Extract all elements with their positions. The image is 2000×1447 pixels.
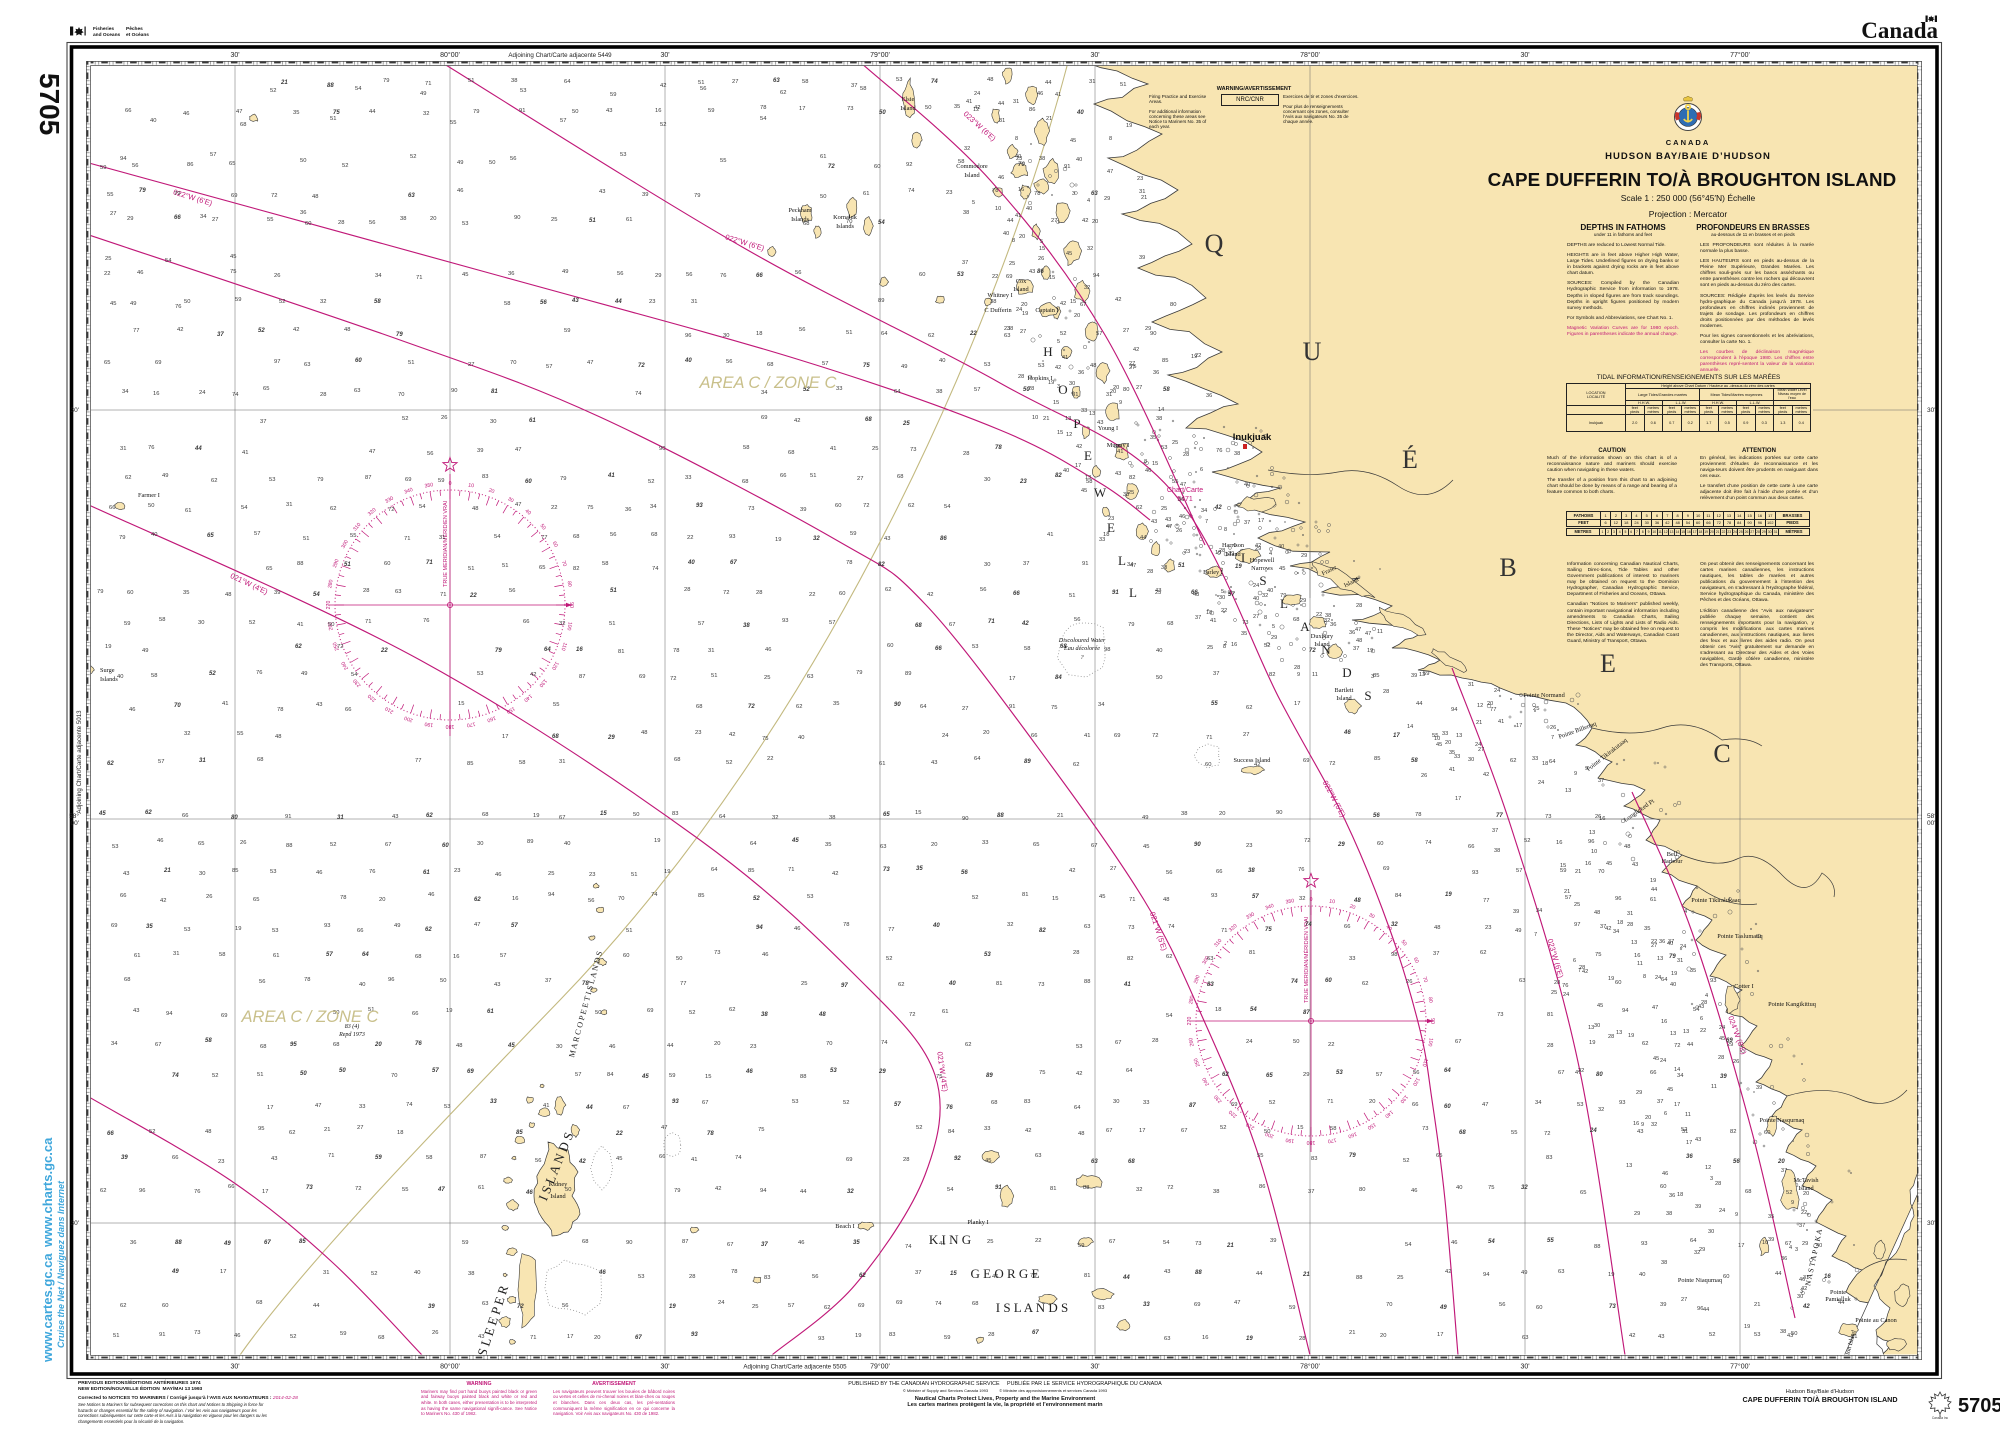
svg-text:73: 73 — [1545, 814, 1551, 820]
svg-text:56: 56 — [588, 898, 594, 904]
svg-text:39: 39 — [1720, 1074, 1727, 1080]
svg-text:15: 15 — [1560, 863, 1566, 869]
svg-text:42: 42 — [1582, 969, 1588, 975]
svg-text:26: 26 — [1733, 1059, 1739, 1065]
svg-text:40: 40 — [932, 923, 940, 929]
svg-text:28: 28 — [1183, 452, 1189, 458]
svg-text:28: 28 — [1028, 386, 1034, 392]
svg-text:90: 90 — [568, 602, 574, 608]
svg-text:38: 38 — [1661, 1260, 1667, 1266]
svg-text:57: 57 — [822, 361, 828, 367]
svg-text:70: 70 — [1386, 1302, 1392, 1308]
svg-text:17: 17 — [1455, 796, 1461, 802]
svg-text:62: 62 — [295, 644, 302, 650]
svg-text:63: 63 — [1004, 333, 1010, 339]
svg-text:96: 96 — [1588, 839, 1594, 845]
svg-text:52: 52 — [258, 328, 265, 334]
svg-text:19: 19 — [664, 869, 670, 875]
svg-text:48: 48 — [344, 327, 350, 333]
svg-text:34: 34 — [200, 214, 207, 220]
svg-text:78: 78 — [760, 105, 766, 111]
svg-text:15: 15 — [1070, 299, 1076, 305]
svg-text:58: 58 — [219, 952, 225, 958]
svg-text:25: 25 — [1574, 902, 1580, 908]
svg-text:88: 88 — [1195, 1270, 1202, 1276]
svg-text:30': 30' — [660, 52, 669, 59]
svg-text:46: 46 — [157, 838, 163, 844]
svg-text:8: 8 — [1012, 238, 1015, 244]
svg-text:62: 62 — [1362, 981, 1368, 987]
svg-text:4: 4 — [1705, 993, 1708, 999]
svg-text:30: 30 — [984, 562, 990, 568]
svg-text:42: 42 — [530, 672, 536, 678]
svg-text:80: 80 — [1427, 997, 1434, 1004]
svg-text:Adjoining Chart/Carte adjacent: Adjoining Chart/Carte adjacente 5449 — [508, 52, 612, 59]
svg-text:98: 98 — [1104, 647, 1110, 653]
svg-text:94: 94 — [1622, 1008, 1629, 1014]
svg-text:58°: 58° — [1927, 812, 1937, 820]
svg-text:51: 51 — [257, 1072, 263, 1078]
svg-text:250: 250 — [1193, 1057, 1202, 1067]
svg-text:28: 28 — [963, 451, 969, 457]
svg-text:13: 13 — [1565, 788, 1571, 794]
svg-text:Adjoining Chart/Carte adjacent: Adjoining Chart/Carte adjacente 5505 — [743, 1364, 847, 1371]
svg-text:23: 23 — [1485, 925, 1491, 931]
svg-text:24: 24 — [1253, 583, 1259, 589]
svg-text:100: 100 — [565, 621, 572, 631]
svg-text:48: 48 — [1163, 897, 1169, 903]
svg-text:54: 54 — [419, 504, 426, 510]
svg-text:15: 15 — [705, 1074, 711, 1080]
svg-text:52: 52 — [753, 896, 760, 902]
svg-text:63: 63 — [1091, 1159, 1098, 1165]
svg-text:Elsie: Elsie — [902, 96, 915, 103]
svg-text:Island: Island — [1798, 1185, 1814, 1192]
svg-text:46: 46 — [428, 892, 434, 898]
svg-text:57: 57 — [210, 152, 216, 158]
svg-text:43: 43 — [599, 189, 605, 195]
svg-text:43: 43 — [1164, 1269, 1170, 1275]
svg-text:59: 59 — [375, 1155, 382, 1161]
svg-text:27: 27 — [1681, 1297, 1687, 1303]
svg-text:7: 7 — [1578, 968, 1581, 974]
svg-text:37: 37 — [1213, 671, 1219, 677]
svg-text:41: 41 — [1062, 355, 1068, 361]
svg-text:56: 56 — [562, 1303, 568, 1309]
svg-text:48: 48 — [456, 1043, 462, 1049]
svg-text:55: 55 — [720, 158, 726, 164]
svg-text:69: 69 — [221, 1013, 227, 1019]
svg-text:45: 45 — [1066, 251, 1072, 257]
svg-text:73: 73 — [1609, 1304, 1616, 1310]
svg-text:19: 19 — [1608, 1272, 1614, 1278]
svg-text:40: 40 — [1026, 206, 1032, 212]
svg-text:52: 52 — [270, 88, 276, 94]
svg-text:62: 62 — [729, 1007, 735, 1013]
svg-text:66: 66 — [182, 813, 188, 819]
svg-text:I S L A N D S: I S L A N D S — [996, 1300, 1068, 1315]
svg-text:68: 68 — [333, 1042, 339, 1048]
svg-text:22: 22 — [767, 756, 773, 762]
svg-text:40: 40 — [939, 358, 945, 364]
svg-text:47: 47 — [515, 502, 521, 508]
svg-text:31: 31 — [199, 758, 206, 764]
svg-text:22: 22 — [1578, 1068, 1584, 1074]
svg-text:27: 27 — [1051, 218, 1057, 224]
svg-text:88: 88 — [297, 561, 303, 567]
svg-text:43: 43 — [271, 1156, 277, 1162]
svg-text:80: 80 — [566, 581, 573, 588]
svg-text:59: 59 — [100, 165, 106, 171]
svg-text:88: 88 — [997, 813, 1004, 819]
svg-text:10: 10 — [1434, 736, 1440, 742]
svg-text:29: 29 — [1634, 1211, 1640, 1217]
svg-text:35: 35 — [954, 104, 960, 110]
svg-text:36: 36 — [625, 507, 631, 513]
svg-text:38: 38 — [761, 1012, 768, 1018]
svg-text:22: 22 — [1651, 939, 1657, 945]
svg-text:44: 44 — [1122, 1275, 1130, 1281]
svg-text:82: 82 — [1127, 956, 1133, 962]
svg-text:47: 47 — [1355, 627, 1361, 633]
svg-text:49: 49 — [171, 1269, 179, 1275]
svg-text:37: 37 — [545, 978, 551, 984]
svg-text:93: 93 — [691, 1332, 698, 1338]
svg-text:16: 16 — [655, 108, 661, 114]
svg-text:38: 38 — [1234, 451, 1240, 457]
svg-text:50: 50 — [1156, 675, 1162, 681]
svg-text:67: 67 — [727, 1242, 733, 1248]
svg-text:30': 30' — [1927, 1220, 1935, 1227]
svg-text:36: 36 — [1686, 1154, 1693, 1160]
svg-text:75: 75 — [758, 1127, 764, 1133]
svg-text:32: 32 — [1007, 922, 1013, 928]
svg-text:48: 48 — [1624, 844, 1630, 850]
svg-text:71: 71 — [1221, 928, 1227, 934]
svg-text:35: 35 — [1690, 968, 1696, 974]
svg-text:72: 72 — [388, 507, 394, 513]
svg-text:20: 20 — [983, 730, 989, 736]
svg-text:55: 55 — [267, 217, 273, 223]
svg-text:60: 60 — [839, 591, 845, 597]
svg-text:94: 94 — [1451, 707, 1458, 713]
svg-text:6: 6 — [1200, 467, 1203, 473]
svg-text:19: 19 — [105, 644, 111, 650]
svg-text:40: 40 — [1003, 231, 1009, 237]
svg-text:42: 42 — [927, 592, 933, 598]
svg-text:66: 66 — [172, 1155, 178, 1161]
svg-text:53: 53 — [272, 928, 278, 934]
svg-text:Harbour: Harbour — [1662, 858, 1684, 865]
svg-text:31: 31 — [691, 299, 697, 305]
svg-text:72: 72 — [909, 1012, 915, 1018]
svg-text:33: 33 — [1081, 408, 1087, 414]
svg-text:70: 70 — [560, 560, 568, 568]
svg-text:68: 68 — [573, 534, 579, 540]
svg-text:24: 24 — [974, 91, 980, 97]
svg-text:72: 72 — [1329, 761, 1335, 767]
svg-text:64: 64 — [1661, 977, 1668, 983]
svg-text:23: 23 — [1184, 549, 1190, 555]
svg-text:4: 4 — [1684, 909, 1687, 915]
svg-text:46: 46 — [765, 647, 771, 653]
svg-text:87: 87 — [480, 1154, 486, 1160]
svg-text:and Oceans: and Oceans — [93, 32, 121, 38]
svg-text:46: 46 — [598, 1270, 606, 1276]
svg-text:33: 33 — [1099, 537, 1105, 543]
svg-text:72: 72 — [638, 363, 645, 369]
svg-text:58: 58 — [519, 760, 525, 766]
svg-text:62: 62 — [859, 1273, 866, 1279]
svg-text:Q: Q — [1205, 229, 1224, 258]
svg-text:37: 37 — [1195, 615, 1201, 621]
svg-text:E: E — [1600, 649, 1616, 678]
svg-text:97: 97 — [841, 983, 848, 989]
svg-text:67: 67 — [1106, 1128, 1112, 1134]
svg-text:62: 62 — [330, 506, 336, 512]
svg-text:40: 40 — [687, 560, 695, 566]
svg-text:26: 26 — [1595, 814, 1601, 820]
svg-text:28: 28 — [689, 1274, 695, 1280]
svg-text:62: 62 — [885, 587, 891, 593]
svg-text:23: 23 — [454, 868, 460, 874]
svg-text:26: 26 — [1550, 725, 1556, 731]
svg-text:62: 62 — [796, 704, 802, 710]
svg-text:31: 31 — [173, 951, 179, 957]
svg-text:90: 90 — [451, 388, 457, 394]
svg-text:67: 67 — [623, 1105, 629, 1111]
svg-text:94: 94 — [1483, 1272, 1490, 1278]
svg-text:59: 59 — [944, 1335, 950, 1341]
svg-text:74: 74 — [1291, 979, 1298, 985]
svg-text:43: 43 — [1029, 269, 1035, 275]
svg-text:21: 21 — [1226, 1243, 1234, 1249]
svg-text:26: 26 — [1421, 773, 1427, 779]
svg-text:15: 15 — [1039, 246, 1045, 252]
svg-text:76: 76 — [946, 1105, 953, 1111]
svg-text:72: 72 — [670, 676, 676, 682]
svg-text:170: 170 — [1327, 1136, 1337, 1143]
svg-text:19: 19 — [533, 813, 539, 819]
svg-text:21: 21 — [1575, 869, 1581, 875]
svg-text:25: 25 — [1128, 490, 1134, 496]
svg-text:40: 40 — [1456, 1185, 1462, 1191]
svg-text:44: 44 — [1687, 1042, 1693, 1048]
svg-text:83: 83 — [889, 1332, 895, 1338]
svg-text:8: 8 — [1109, 136, 1112, 142]
svg-text:66: 66 — [1031, 733, 1037, 739]
svg-text:51: 51 — [1069, 593, 1075, 599]
svg-text:39: 39 — [1270, 1238, 1276, 1244]
svg-text:25: 25 — [1009, 261, 1015, 267]
svg-text:Bell: Bell — [1667, 851, 1678, 858]
svg-text:58: 58 — [1163, 387, 1170, 393]
svg-text:16: 16 — [1556, 840, 1562, 846]
svg-text:71: 71 — [328, 1153, 334, 1159]
svg-text:34: 34 — [122, 389, 129, 395]
svg-text:31: 31 — [999, 118, 1005, 124]
svg-text:10: 10 — [995, 206, 1001, 212]
svg-text:53: 53 — [1076, 1044, 1082, 1050]
svg-text:90: 90 — [962, 816, 968, 822]
svg-text:81: 81 — [491, 389, 498, 395]
svg-text:17: 17 — [1294, 701, 1300, 707]
svg-text:58: 58 — [602, 561, 608, 567]
svg-text:88: 88 — [1356, 1275, 1362, 1281]
svg-text:35: 35 — [1150, 435, 1156, 441]
svg-text:022°W (6'E): 022°W (6'E) — [724, 232, 766, 253]
svg-text:59: 59 — [1078, 1243, 1084, 1249]
svg-text:35: 35 — [853, 1240, 860, 1246]
svg-text:62: 62 — [1480, 950, 1486, 956]
svg-text:22: 22 — [615, 1131, 623, 1137]
svg-text:AREA C / ZONE C: AREA C / ZONE C — [699, 374, 837, 392]
svg-text:15: 15 — [458, 701, 464, 707]
svg-text:83: 83 — [1546, 1155, 1552, 1161]
svg-text:230: 230 — [352, 677, 362, 688]
svg-text:D: D — [1342, 665, 1351, 680]
svg-text:15: 15 — [600, 811, 607, 817]
svg-text:53: 53 — [444, 1104, 450, 1110]
svg-text:52: 52 — [402, 416, 408, 422]
svg-text:25: 25 — [105, 256, 111, 262]
svg-text:57: 57 — [511, 923, 518, 929]
svg-text:3: 3 — [1710, 1176, 1713, 1182]
svg-text:75: 75 — [762, 736, 768, 742]
svg-text:37: 37 — [1668, 939, 1674, 945]
svg-text:24: 24 — [1589, 1128, 1597, 1134]
svg-text:55: 55 — [450, 120, 456, 126]
svg-text:30: 30 — [198, 620, 204, 626]
svg-text:38: 38 — [1325, 613, 1331, 619]
svg-text:70: 70 — [618, 896, 624, 902]
svg-text:22: 22 — [1700, 1028, 1706, 1034]
svg-text:39: 39 — [1768, 1237, 1774, 1243]
svg-text:69: 69 — [1114, 733, 1120, 739]
svg-text:25: 25 — [1551, 990, 1557, 996]
svg-text:60: 60 — [1377, 841, 1383, 847]
svg-text:69: 69 — [155, 360, 161, 366]
svg-text:58: 58 — [860, 86, 866, 92]
svg-text:0: 0 — [449, 481, 452, 487]
svg-text:56: 56 — [1499, 1302, 1505, 1308]
svg-text:79: 79 — [174, 191, 180, 197]
svg-text:69: 69 — [111, 923, 117, 929]
svg-text:46: 46 — [794, 926, 800, 932]
svg-text:41: 41 — [607, 473, 615, 479]
svg-text:38: 38 — [743, 623, 750, 629]
svg-text:40: 40 — [151, 532, 157, 538]
svg-text:56: 56 — [509, 588, 515, 594]
svg-text:20: 20 — [1092, 219, 1098, 225]
svg-text:65: 65 — [207, 533, 214, 539]
svg-text:52: 52 — [1269, 1100, 1275, 1106]
svg-text:20: 20 — [1074, 313, 1080, 319]
svg-text:16: 16 — [453, 954, 459, 960]
svg-text:et Océans: et Océans — [126, 32, 149, 38]
svg-text:41: 41 — [1047, 532, 1053, 538]
svg-text:26: 26 — [1176, 528, 1182, 534]
svg-text:19: 19 — [775, 537, 781, 543]
svg-text:22: 22 — [992, 274, 998, 280]
svg-text:230: 230 — [1213, 1093, 1223, 1104]
svg-text:43: 43 — [571, 298, 579, 304]
svg-text:55: 55 — [350, 533, 356, 539]
svg-text:79: 79 — [139, 188, 146, 194]
svg-text:69: 69 — [1303, 758, 1309, 764]
svg-text:91: 91 — [1082, 561, 1088, 567]
svg-text:52: 52 — [972, 895, 978, 901]
svg-text:65: 65 — [1266, 1073, 1273, 1079]
svg-text:350: 350 — [424, 482, 434, 489]
svg-text:69: 69 — [1231, 1102, 1237, 1108]
svg-text:www.cartes.gc.ca: www.cartes.gc.ca — [40, 1253, 55, 1363]
svg-text:70: 70 — [398, 392, 404, 398]
svg-text:53: 53 — [984, 362, 990, 368]
svg-text:46: 46 — [1037, 91, 1043, 97]
svg-text:62: 62 — [1510, 758, 1516, 764]
svg-text:44: 44 — [313, 1303, 320, 1309]
svg-text:37: 37 — [1598, 778, 1604, 784]
svg-text:28: 28 — [988, 1332, 994, 1338]
svg-text:Surge: Surge — [100, 667, 115, 674]
svg-text:50: 50 — [300, 158, 306, 164]
svg-text:75: 75 — [587, 505, 593, 511]
svg-text:22: 22 — [380, 648, 388, 654]
svg-text:68: 68 — [415, 954, 421, 960]
svg-text:72: 72 — [828, 164, 835, 170]
svg-text:68: 68 — [1459, 1130, 1466, 1136]
svg-text:60: 60 — [1205, 762, 1211, 768]
svg-text:76: 76 — [148, 445, 154, 451]
svg-text:35: 35 — [1768, 1214, 1774, 1220]
svg-text:66: 66 — [1344, 924, 1350, 930]
svg-text:60: 60 — [305, 221, 311, 227]
svg-text:24: 24 — [942, 733, 949, 739]
svg-text:30: 30 — [506, 496, 514, 504]
svg-text:57: 57 — [432, 1068, 439, 1074]
svg-text:53: 53 — [1038, 363, 1044, 369]
svg-text:49: 49 — [420, 91, 426, 97]
svg-text:46: 46 — [525, 1190, 533, 1196]
svg-text:62: 62 — [125, 475, 131, 481]
svg-text:45: 45 — [985, 1158, 991, 1164]
svg-text:38: 38 — [468, 1271, 474, 1277]
svg-text:47: 47 — [515, 447, 521, 453]
svg-text:62: 62 — [1246, 705, 1252, 711]
svg-text:61: 61 — [1650, 897, 1656, 903]
svg-text:55: 55 — [1172, 479, 1178, 485]
svg-text:94: 94 — [1093, 273, 1100, 279]
svg-text:39: 39 — [1695, 1204, 1701, 1210]
svg-text:79: 79 — [97, 589, 103, 595]
svg-text:36: 36 — [1330, 622, 1336, 628]
svg-text:60: 60 — [127, 590, 133, 596]
svg-text:48: 48 — [312, 194, 318, 200]
svg-text:45: 45 — [641, 1074, 649, 1080]
svg-text:47: 47 — [1107, 169, 1113, 175]
svg-text:40: 40 — [1253, 596, 1259, 602]
svg-text:60: 60 — [1325, 978, 1332, 984]
svg-text:8: 8 — [1264, 615, 1267, 621]
svg-text:60: 60 — [1412, 956, 1420, 964]
svg-text:79: 79 — [317, 477, 323, 483]
svg-text:66: 66 — [1650, 1070, 1656, 1076]
svg-text:84: 84 — [1395, 893, 1402, 899]
svg-text:78: 78 — [304, 977, 310, 983]
svg-text:50: 50 — [1293, 1039, 1299, 1045]
svg-text:Duxbury: Duxbury — [1311, 633, 1334, 640]
